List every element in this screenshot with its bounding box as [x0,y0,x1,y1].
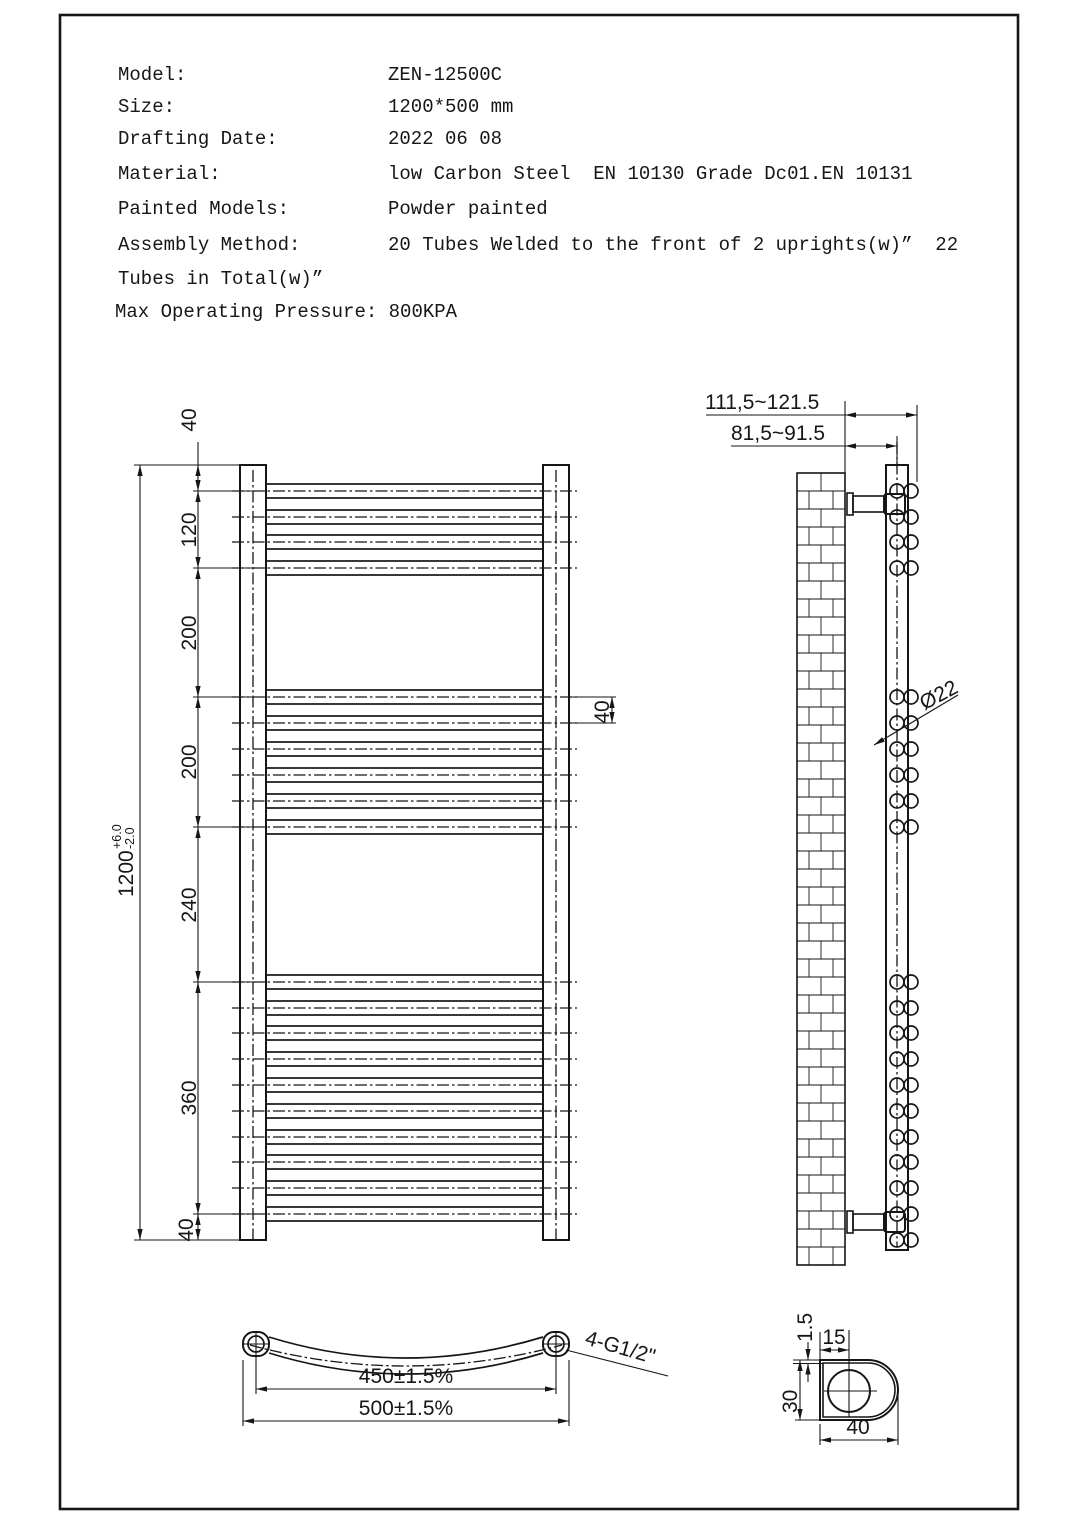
front-tubes [232,484,577,1221]
dim-seg-top: 40 [178,408,201,431]
tube-bulge-circle [904,484,918,498]
header-label: Size: [118,96,175,118]
tube-bulge-circle [904,1104,918,1118]
dim-wall-thickness: 1.5 [794,1313,817,1342]
tube-bulge-circle [904,820,918,834]
header-label: Drafting Date: [118,128,278,150]
top-view: 450±1.5% 500±1.5% 4-G1/2" [243,1327,668,1426]
tube-bulge-circle [904,975,918,989]
dim-seg-200b: 200 [178,744,201,779]
front-view: 1200 +6.0 -2.0 40 120 200 200 240 360 40… [110,408,616,1243]
dim-seg-bottom: 40 [175,1218,198,1241]
material-value: low Carbon Steel EN 10130 Grade Dc01.EN … [388,163,913,185]
tube-bulge-circle [904,1181,918,1195]
dim-seg-200a: 200 [178,615,201,650]
tube-bulge-circle [904,1233,918,1247]
tube-bulge-circle [904,535,918,549]
pressure-line: Max Operating Pressure: 800KPA [115,301,458,323]
tube-bulge-circle [904,768,918,782]
tube-bulge-circle [904,1130,918,1144]
tube-bulge-circle [904,1207,918,1221]
model-value: ZEN-12500C [388,64,502,86]
svg-text:+6.0: +6.0 [110,824,124,849]
right-fitting [543,1331,569,1357]
svg-text:1200: 1200 [115,850,138,897]
tube-bulge-circle [904,561,918,575]
tube-bulge-circle [904,742,918,756]
profile-outer [820,1360,898,1420]
dim-tube-diameter: Ø22 [916,676,962,715]
dim-centers: 450±1.5% [359,1365,453,1388]
tube-bulge-circle [904,690,918,704]
dim-hole-offset: 15 [822,1326,845,1349]
dim-seg-360: 360 [178,1080,201,1115]
side-tube-circles [890,484,918,1247]
side-view: 111,5~121.5 81,5~91.5 Ø22 [705,391,962,1265]
thread-label: 4-G1/2" [583,1327,658,1369]
tube-bulge-circle [904,1155,918,1169]
header-label: Painted Models: [118,198,289,220]
size-value: 1200*500 mm [388,96,513,118]
dim-seg-240: 240 [178,887,201,922]
overall-dim-text: 1200 +6.0 -2.0 [110,824,138,897]
header-block: Model: ZEN-12500C Size: 1200*500 mm Draf… [115,64,958,323]
date-value: 2022 06 08 [388,128,502,150]
left-fitting [243,1331,269,1357]
tube-arc-top [269,1337,543,1358]
dim-profile-height: 30 [779,1390,802,1413]
tube-bulge-circle [904,1001,918,1015]
paint-value: Powder painted [388,198,548,220]
header-label: Material: [118,163,221,185]
assembly-overflow: Tubes in Total(w)” [118,268,323,290]
dim-wall-inner: 81,5~91.5 [731,422,825,445]
brick-hatch [797,473,845,1265]
detail-view: 1.5 15 30 40 [779,1313,898,1445]
header-label: Assembly Method: [118,234,300,256]
dim-overall-width: 500±1.5% [359,1397,453,1420]
wall-bracket-bottom [847,1211,905,1233]
assembly-value: 20 Tubes Welded to the front of 2 uprigh… [388,234,958,256]
dim-seg-120: 120 [178,512,201,547]
drawing-sheet: Model: ZEN-12500C Size: 1200*500 mm Draf… [0,0,1080,1527]
tube-bulge-circle [904,1078,918,1092]
dim-profile-width: 40 [846,1416,869,1439]
tube-bulge-circle [904,510,918,524]
tube-bulge-circle [904,1052,918,1066]
dim-tube-pitch: 40 [591,700,614,723]
svg-text:-2.0: -2.0 [123,827,137,849]
header-label: Model: [118,64,186,86]
tube-bulge-circle [904,794,918,808]
tube-bulge-circle [904,1026,918,1040]
tube-arc-centerline [250,1345,562,1366]
wall-bracket-top [847,493,905,515]
dim-wall-outer: 111,5~121.5 [705,391,819,414]
